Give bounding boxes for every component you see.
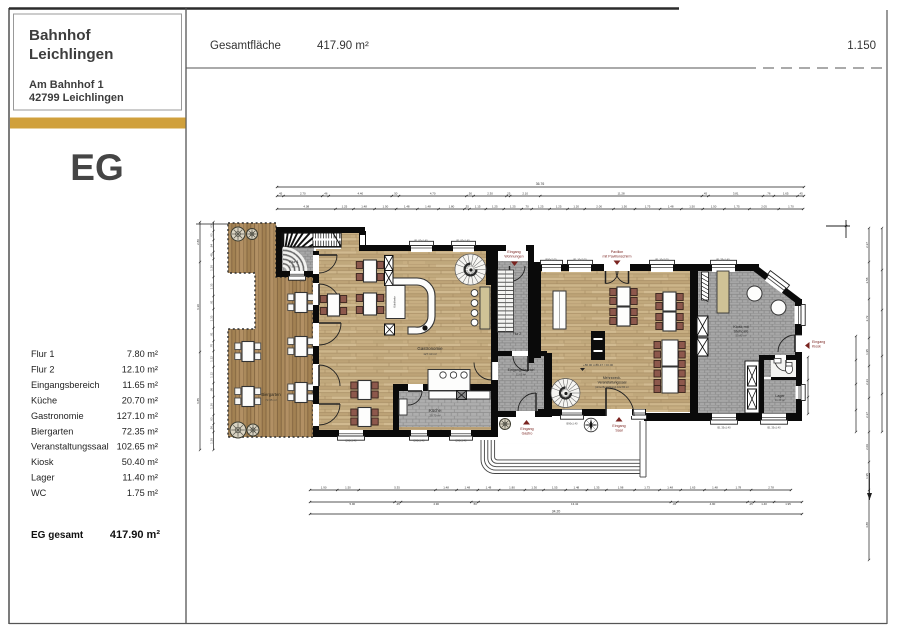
svg-text:1.65: 1.65: [783, 192, 789, 196]
svg-text:11.65 m²: 11.65 m²: [516, 372, 526, 376]
svg-text:Eingang: Eingang: [812, 340, 825, 344]
svg-text:.56: .56: [209, 426, 213, 431]
svg-text:1.50: 1.50: [621, 205, 627, 209]
svg-text:4.90: 4.90: [433, 502, 439, 506]
svg-text:2.78: 2.78: [768, 486, 774, 490]
svg-text:1.48: 1.48: [574, 486, 580, 490]
svg-text:WC: WC: [31, 488, 47, 498]
svg-text:2.37: 2.37: [865, 412, 869, 418]
svg-text:Biergarten: Biergarten: [31, 426, 73, 436]
svg-text:1.50: 1.50: [711, 205, 717, 209]
svg-text:Gastronomie: Gastronomie: [417, 346, 443, 351]
svg-text:B1.35x1.40: B1.35x1.40: [767, 426, 781, 430]
svg-text:B1.10x2.00: B1.10x2.00: [655, 258, 669, 262]
svg-text:Lager: Lager: [775, 394, 785, 398]
svg-text:EG: EG: [70, 147, 123, 188]
svg-text:2.58: 2.58: [865, 277, 869, 283]
svg-text:.63: .63: [209, 417, 213, 422]
svg-text:1.80: 1.80: [449, 205, 455, 209]
svg-text:Flur 1: Flur 1: [31, 349, 55, 359]
svg-text:1.48: 1.48: [404, 205, 410, 209]
svg-text:.50: .50: [473, 502, 477, 506]
svg-text:B1.10x2.00: B1.10x2.00: [573, 258, 587, 262]
svg-text:2.30: 2.30: [487, 192, 493, 196]
svg-text:2.05: 2.05: [761, 205, 767, 209]
svg-text:2.09: 2.09: [865, 444, 869, 450]
svg-text:2.72: 2.72: [865, 315, 869, 321]
svg-text:Gesamtfläche: Gesamtfläche: [210, 40, 281, 52]
svg-text:.45: .45: [749, 502, 753, 506]
svg-text:.25: .25: [506, 192, 510, 196]
svg-text:1.95: 1.95: [865, 349, 869, 355]
svg-text:.91: .91: [209, 300, 213, 305]
svg-text:.49: .49: [209, 253, 213, 258]
svg-text:1.75: 1.75: [734, 205, 740, 209]
svg-text:2.00: 2.00: [596, 205, 602, 209]
svg-text:1.26: 1.26: [209, 265, 213, 271]
svg-text:417.90 m²: 417.90 m²: [317, 40, 369, 52]
svg-text:1.33: 1.33: [209, 283, 213, 289]
svg-text:1.20: 1.20: [573, 205, 579, 209]
svg-text:1.48: 1.48: [712, 486, 718, 490]
svg-text:1.40: 1.40: [761, 502, 767, 506]
svg-text:11.40 m²: 11.40 m²: [122, 473, 158, 483]
svg-text:Lager: Lager: [31, 473, 55, 483]
svg-text:4.90: 4.90: [710, 502, 716, 506]
svg-text:3.81: 3.81: [733, 192, 739, 196]
svg-text:Küche: Küche: [31, 395, 57, 405]
svg-text:Kiosk: Kiosk: [31, 457, 54, 467]
svg-text:Bahnhof: Bahnhof: [29, 27, 92, 44]
svg-text:.70: .70: [525, 205, 529, 209]
svg-text:50.40 m²: 50.40 m²: [735, 334, 746, 338]
svg-text:B1.35x1.40: B1.35x1.40: [716, 258, 730, 262]
svg-text:mit Pavillonschirm: mit Pavillonschirm: [603, 255, 632, 259]
svg-text:1.50: 1.50: [345, 486, 351, 490]
svg-text:34.20: 34.20: [552, 509, 561, 513]
svg-text:B90: B90: [300, 279, 305, 283]
svg-text:1.33: 1.33: [209, 315, 213, 321]
svg-text:Flur 2: Flur 2: [513, 332, 521, 336]
svg-text:1.80: 1.80: [509, 486, 515, 490]
svg-text:Eingangsbereich: Eingangsbereich: [508, 368, 535, 372]
svg-text:1.75: 1.75: [645, 205, 651, 209]
svg-text:1.48: 1.48: [667, 486, 673, 490]
svg-text:1.95: 1.95: [865, 473, 869, 479]
svg-text:11.65 m²: 11.65 m²: [122, 380, 158, 390]
svg-text:2.23: 2.23: [865, 379, 869, 385]
svg-text:1.50: 1.50: [689, 205, 695, 209]
svg-text:.63: .63: [209, 224, 213, 229]
svg-text:1.55: 1.55: [552, 486, 558, 490]
svg-text:1.48: 1.48: [464, 486, 470, 490]
svg-text:1.25: 1.25: [556, 205, 562, 209]
svg-text:B1.00x1.40: B1.00x1.40: [456, 238, 470, 242]
svg-text:Eingangsbereich: Eingangsbereich: [31, 380, 99, 390]
svg-text:1.25: 1.25: [538, 205, 544, 209]
svg-text:Gastro: Gastro: [522, 432, 533, 436]
svg-text:.46: .46: [323, 192, 327, 196]
svg-text:1.78: 1.78: [736, 486, 742, 490]
svg-text:6.30: 6.30: [196, 304, 200, 310]
svg-text:50.40 m²: 50.40 m²: [122, 457, 158, 467]
svg-text:7.80 m²: 7.80 m²: [127, 349, 158, 359]
svg-text:Eingang: Eingang: [520, 427, 533, 431]
svg-text:20.70 m²: 20.70 m²: [429, 414, 440, 418]
svg-text:Eingang: Eingang: [507, 250, 520, 254]
svg-text:Wohnungen: Wohnungen: [504, 255, 523, 259]
svg-text:.70: .70: [209, 344, 213, 349]
svg-text:1.48: 1.48: [361, 205, 367, 209]
svg-text:1.30: 1.30: [531, 486, 537, 490]
svg-text:11.40 m²: 11.40 m²: [775, 398, 785, 402]
svg-text:.63: .63: [209, 233, 213, 238]
svg-text:.45: .45: [703, 192, 707, 196]
svg-text:1.95: 1.95: [785, 502, 791, 506]
svg-text:.50: .50: [393, 192, 397, 196]
svg-text:42799 Leichlingen: 42799 Leichlingen: [29, 92, 124, 104]
svg-text:1.65: 1.65: [690, 486, 696, 490]
svg-text:Eingang: Eingang: [612, 424, 625, 428]
svg-text:6.85: 6.85: [196, 398, 200, 404]
svg-text:Kühltheke: Kühltheke: [393, 296, 397, 308]
svg-text:.76: .76: [766, 192, 770, 196]
svg-text:12.10 m²: 12.10 m²: [122, 364, 158, 374]
svg-text:Kiosk mit: Kiosk mit: [733, 325, 749, 329]
svg-text:B90x2.00: B90x2.00: [546, 258, 558, 262]
svg-text:1.25: 1.25: [342, 205, 348, 209]
svg-text:5.35: 5.35: [394, 486, 400, 490]
svg-text:5.90: 5.90: [349, 502, 355, 506]
svg-text:4.88: 4.88: [865, 522, 869, 528]
svg-text:1.12: 1.12: [209, 356, 213, 362]
svg-text:.98: .98: [209, 388, 213, 393]
svg-text:11.28: 11.28: [618, 192, 625, 196]
svg-text:127.10 m²: 127.10 m²: [423, 352, 437, 356]
svg-text:.45: .45: [278, 192, 282, 196]
svg-text:2.37: 2.37: [865, 242, 869, 248]
svg-text:1.48: 1.48: [443, 486, 449, 490]
svg-text:B1.35x1.40: B1.35x1.40: [717, 426, 731, 430]
svg-text:Pavillon: Pavillon: [611, 250, 624, 254]
svg-text:Flur 2: Flur 2: [31, 364, 55, 374]
svg-text:417.90 m²: 417.90 m²: [110, 529, 160, 541]
svg-text:1.150: 1.150: [847, 40, 876, 52]
svg-text:4.40: 4.40: [357, 192, 363, 196]
svg-text:36.76: 36.76: [536, 182, 545, 186]
svg-text:B90x1.40: B90x1.40: [456, 439, 468, 443]
svg-text:Veranstaltungssaal: Veranstaltungssaal: [598, 381, 627, 385]
svg-text:1.26: 1.26: [209, 403, 213, 409]
svg-text:2.70: 2.70: [300, 192, 306, 196]
svg-text:Küche: Küche: [429, 408, 442, 413]
svg-text:B1.00x1.40: B1.00x1.40: [414, 238, 428, 242]
svg-text:B90x1.40: B90x1.40: [346, 439, 358, 443]
svg-text:1.70: 1.70: [788, 205, 794, 209]
svg-text:Biergarten: Biergarten: [261, 392, 281, 397]
svg-text:1.12: 1.12: [209, 372, 213, 378]
svg-text:1.25: 1.25: [510, 205, 516, 209]
svg-text:Saal: Saal: [615, 429, 622, 433]
svg-text:.50: .50: [468, 192, 472, 196]
svg-text:102.65 m²: 102.65 m²: [117, 442, 158, 452]
svg-text:.45: .45: [799, 192, 803, 196]
svg-text:1.35: 1.35: [594, 486, 600, 490]
svg-text:1.48: 1.48: [668, 205, 674, 209]
svg-text:4.70: 4.70: [430, 192, 436, 196]
svg-text:B90x1.40: B90x1.40: [567, 422, 579, 426]
svg-text:EG gesamt: EG gesamt: [31, 530, 84, 541]
svg-text:.35: .35: [465, 205, 469, 209]
svg-text:Flur 1: Flur 1: [289, 260, 298, 264]
svg-text:.45: .45: [672, 502, 676, 506]
svg-text:72.35 m²: 72.35 m²: [122, 426, 158, 436]
svg-text:Veranstaltungssaal: Veranstaltungssaal: [31, 442, 109, 452]
svg-text:(ohne Bestuhlung) 102.65 m²: (ohne Bestuhlung) 102.65 m²: [595, 385, 629, 389]
svg-text:1.48: 1.48: [425, 205, 431, 209]
svg-text:1.73: 1.73: [644, 486, 650, 490]
svg-text:72.35 m²: 72.35 m²: [265, 398, 277, 402]
svg-text:1.75 m²: 1.75 m²: [127, 488, 158, 498]
svg-text:1.90: 1.90: [321, 486, 327, 490]
svg-text:.91: .91: [209, 332, 213, 337]
svg-text:1.25: 1.25: [492, 205, 498, 209]
svg-text:Mehrzweck-: Mehrzweck-: [603, 376, 621, 380]
svg-text:2.80: 2.80: [196, 239, 200, 245]
svg-text:B90x1.40: B90x1.40: [414, 439, 426, 443]
svg-text:1.50: 1.50: [383, 205, 389, 209]
svg-text:4.08: 4.08: [303, 205, 309, 209]
svg-text:+86.00 ü 86.47 / ±0.00: +86.00 ü 86.47 / ±0.00: [583, 363, 613, 367]
svg-text:.84: .84: [209, 244, 213, 249]
svg-text:7.80 m²: 7.80 m²: [289, 264, 299, 268]
svg-text:Gastronomie: Gastronomie: [31, 411, 84, 421]
svg-text:Kiosk: Kiosk: [812, 345, 821, 349]
svg-text:1.48: 1.48: [486, 486, 492, 490]
svg-text:20.70 m²: 20.70 m²: [122, 395, 158, 405]
svg-text:1.15: 1.15: [475, 205, 481, 209]
svg-text:Leichlingen: Leichlingen: [29, 46, 113, 63]
svg-text:.45: .45: [396, 502, 400, 506]
svg-text:127.10 m²: 127.10 m²: [117, 411, 158, 421]
svg-text:1.98: 1.98: [618, 486, 624, 490]
svg-text:Am Bahnhof 1: Am Bahnhof 1: [29, 79, 104, 91]
svg-text:2.10: 2.10: [522, 192, 528, 196]
svg-text:13.42: 13.42: [571, 502, 579, 506]
svg-text:1.26: 1.26: [209, 438, 213, 444]
